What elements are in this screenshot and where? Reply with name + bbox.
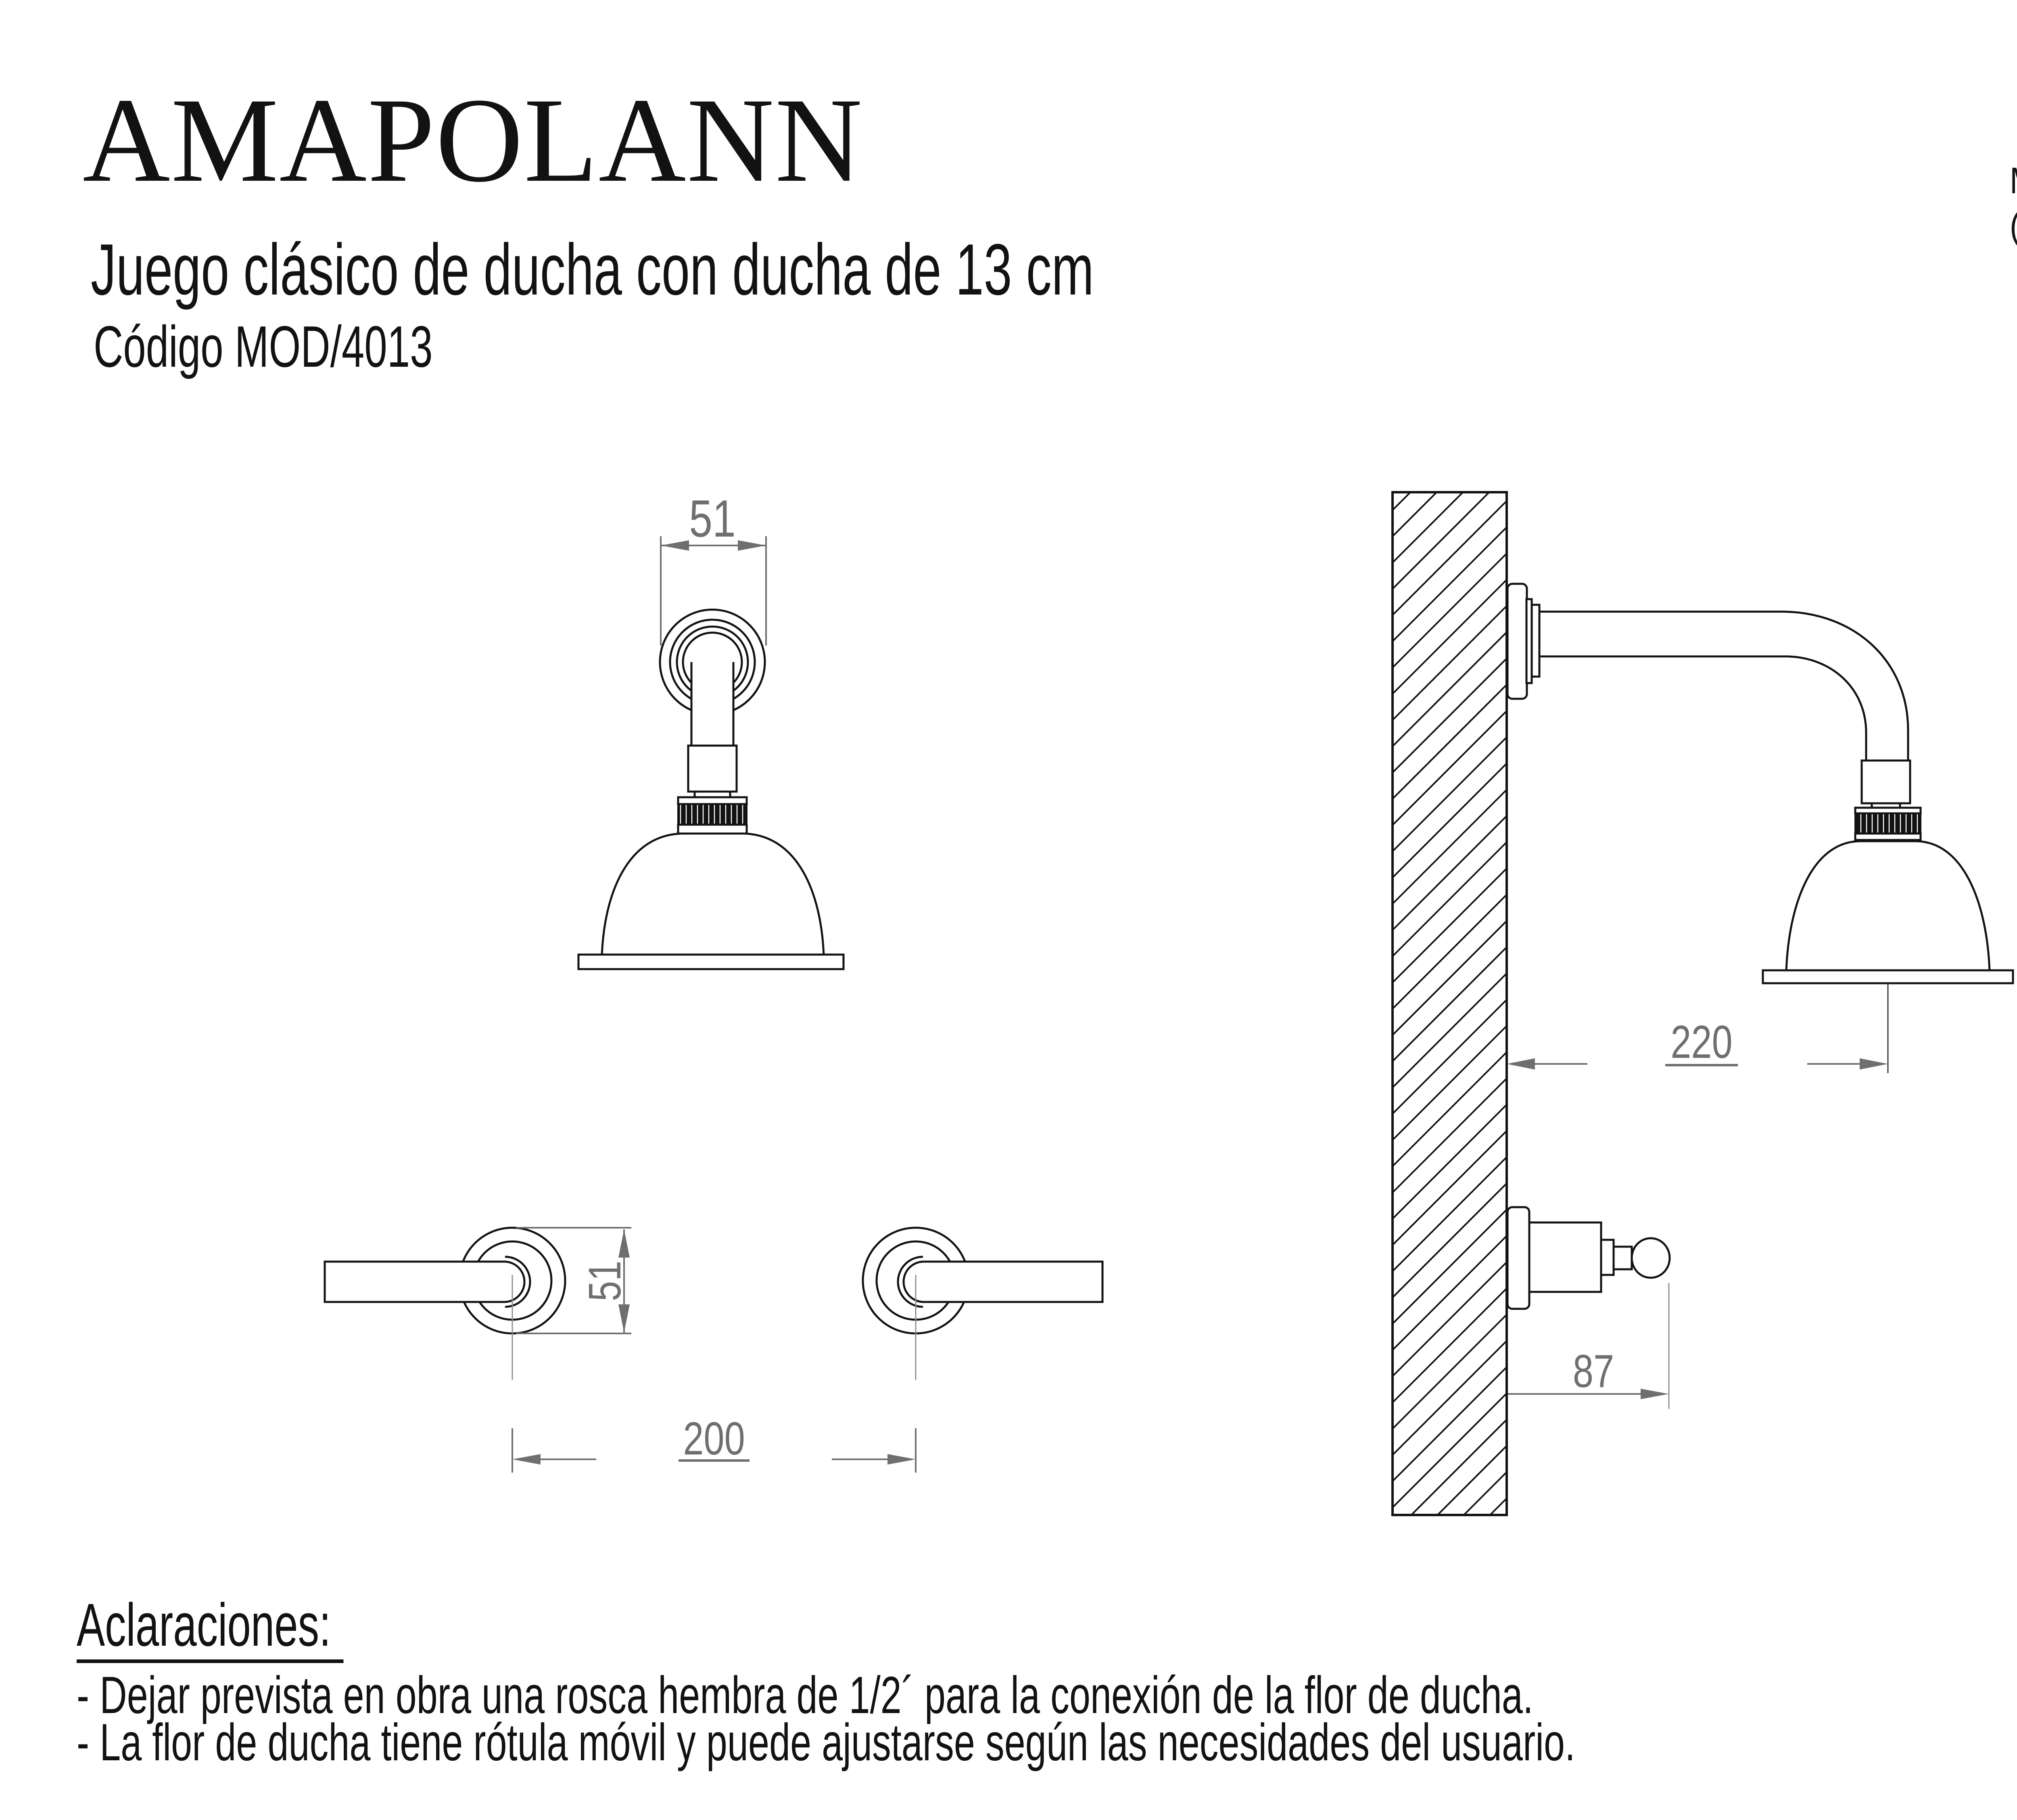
lever-end-cap [904, 1262, 924, 1302]
dimension-51-rosette: 51 [516, 1228, 631, 1333]
valve-body [1529, 1222, 1601, 1292]
shower-rim [578, 955, 844, 969]
valve-stem [1601, 1240, 1614, 1275]
dimension-200: 200 [512, 1413, 916, 1473]
left-handle [325, 1228, 565, 1380]
hub-arc [898, 1257, 923, 1307]
valve-knob [1632, 1238, 1670, 1278]
arm-tube-outer [1539, 612, 1908, 761]
valve-stem-neck [1614, 1247, 1632, 1269]
pipe-connector [1862, 761, 1910, 803]
ball-joint-knurled-band [1855, 813, 1921, 834]
arrowhead-right [887, 1454, 916, 1465]
arrowhead-right [738, 540, 766, 551]
shower-rim [1763, 970, 2013, 983]
dimension-label: 51 [689, 489, 736, 548]
note-item-2: - La flor de ducha tiene rótula móvil y … [77, 1713, 1575, 1771]
arm-wall-flange [1508, 584, 1527, 699]
arrowhead-right [1641, 1389, 1669, 1399]
ball-joint-ring-bottom [678, 825, 747, 834]
pipe-connector [688, 746, 737, 792]
arm-pipe-fill [691, 662, 733, 746]
front-view-handles: 51 200 [325, 1228, 1102, 1473]
dimension-220: 220 [1507, 1016, 1888, 1070]
wall-hatched-section [1393, 492, 1507, 1515]
ball-joint-ring-top [678, 797, 747, 804]
front-view-shower-head: 51 [578, 489, 844, 969]
shower-bell [602, 834, 824, 955]
valve-wall-plate [1508, 1207, 1529, 1309]
notes-title: Aclaraciones: [77, 1595, 344, 1663]
dimension-label: 87 [1573, 1346, 1614, 1397]
lever-end-cap [504, 1262, 524, 1302]
arrowhead-right [1860, 1058, 1888, 1070]
lever-fill [325, 1262, 504, 1302]
arm-flange-step2 [1532, 605, 1539, 677]
arrowhead-left [512, 1454, 541, 1465]
right-handle [863, 1228, 1102, 1380]
extension-lines [661, 536, 766, 646]
arrowhead-left [1507, 1058, 1535, 1070]
side-shower-arm [1508, 584, 2013, 1073]
dimension-87: 87 [1508, 1283, 1669, 1409]
notes-title-text: Aclaraciones: [77, 1595, 344, 1663]
hub-arc [505, 1257, 530, 1307]
ball-joint-knurled-band [678, 804, 747, 825]
shower-bell [1786, 841, 1990, 971]
arrowhead-bottom [618, 1304, 630, 1333]
side-valve [1508, 1207, 1670, 1309]
ball-joint-ring-bottom [1855, 834, 1921, 840]
lever-fill [924, 1262, 1102, 1302]
arrowhead-left [661, 540, 689, 551]
side-view: 220 87 [1393, 492, 2013, 1515]
technical-drawing: 51 [0, 0, 2017, 1820]
product-sheet: AMAPOLANN Juego clásico de ducha con duc… [0, 0, 2017, 1820]
arrowhead-top [618, 1229, 630, 1258]
dimension-label: 200 [683, 1413, 745, 1465]
arm-tube-inner [1539, 656, 1866, 761]
dimension-label: 220 [1670, 1016, 1732, 1068]
dimension-label: 51 [579, 1261, 630, 1302]
ball-joint-ring-top [1855, 808, 1921, 813]
dimension-51-front: 51 [661, 489, 766, 646]
